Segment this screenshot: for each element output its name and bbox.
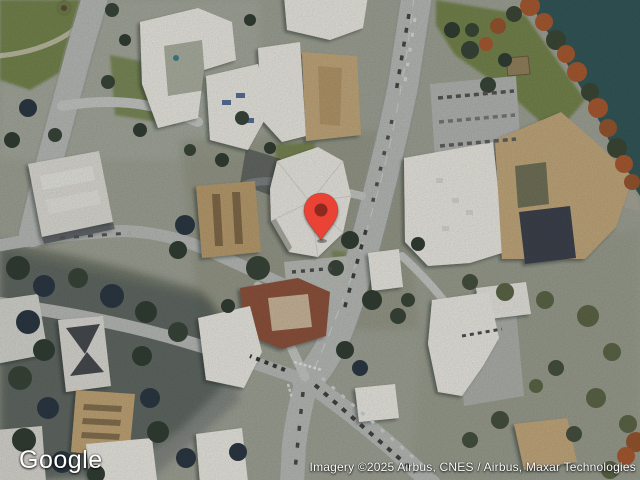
map-canvas[interactable]: Google Imagery ©2025 Airbus, CNES / Airb…: [0, 0, 640, 480]
google-logo[interactable]: Google: [19, 448, 103, 473]
imagery-attribution: Imagery ©2025 Airbus, CNES / Airbus, Max…: [310, 460, 636, 474]
satellite-image: [0, 0, 640, 480]
pin-dot: [315, 204, 328, 217]
pin-ground-shadow: [317, 239, 327, 243]
